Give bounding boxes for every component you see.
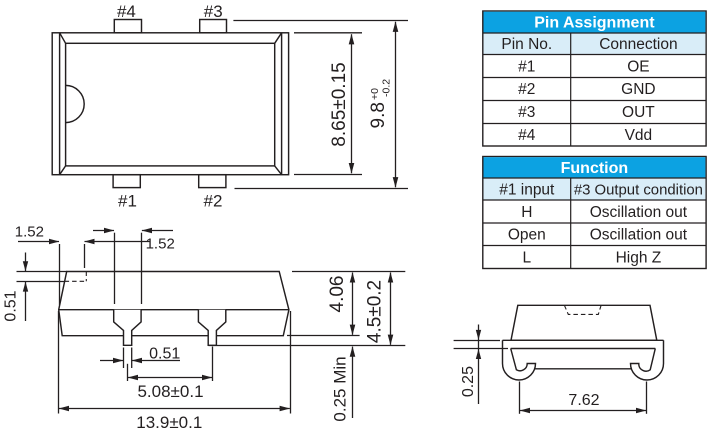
- svg-text:OE: OE: [627, 58, 649, 75]
- svg-text:GND: GND: [621, 81, 655, 98]
- svg-text:H: H: [521, 204, 532, 221]
- svg-text:0.25 Min: 0.25 Min: [331, 356, 350, 421]
- svg-text:#3: #3: [204, 2, 223, 21]
- svg-text:High Z: High Z: [616, 250, 662, 267]
- svg-text:#1 input: #1 input: [499, 182, 555, 199]
- svg-text:+0: +0: [369, 88, 381, 100]
- svg-text:#2: #2: [518, 81, 535, 98]
- svg-text:#2: #2: [204, 192, 223, 211]
- svg-text:Vdd: Vdd: [625, 127, 653, 144]
- svg-text:0.51: 0.51: [149, 345, 180, 362]
- svg-text:4.5±0.2: 4.5±0.2: [365, 280, 386, 343]
- svg-text:0.25: 0.25: [460, 366, 477, 397]
- svg-text:#1: #1: [518, 58, 535, 75]
- svg-text:#1: #1: [118, 192, 137, 211]
- svg-text:#4: #4: [518, 127, 536, 144]
- svg-text:Oscillation out: Oscillation out: [590, 204, 688, 221]
- svg-text:5.08±0.1: 5.08±0.1: [137, 382, 203, 401]
- svg-text:8.65±0.15: 8.65±0.15: [329, 62, 350, 146]
- svg-text:#3 Output condition: #3 Output condition: [574, 183, 703, 199]
- svg-text:L: L: [522, 250, 531, 267]
- svg-text:13.9±0.1: 13.9±0.1: [136, 413, 202, 432]
- svg-text:Function: Function: [561, 160, 629, 177]
- svg-text:1.52: 1.52: [15, 224, 44, 241]
- svg-text:-0.2: -0.2: [380, 79, 392, 97]
- svg-text:#4: #4: [117, 2, 136, 21]
- svg-text:Pin No.: Pin No.: [501, 36, 552, 53]
- svg-text:OUT: OUT: [622, 104, 655, 121]
- svg-text:Oscillation out: Oscillation out: [590, 227, 688, 244]
- svg-text:Pin Assignment: Pin Assignment: [534, 15, 655, 32]
- svg-text:#3: #3: [518, 104, 535, 121]
- svg-text:9.8: 9.8: [368, 102, 389, 128]
- svg-text:4.06: 4.06: [327, 276, 348, 313]
- svg-text:0.51: 0.51: [3, 290, 20, 321]
- svg-text:Connection: Connection: [599, 36, 677, 53]
- svg-text:1.52: 1.52: [146, 236, 175, 253]
- svg-text:Open: Open: [508, 227, 546, 244]
- svg-text:7.62: 7.62: [568, 392, 599, 409]
